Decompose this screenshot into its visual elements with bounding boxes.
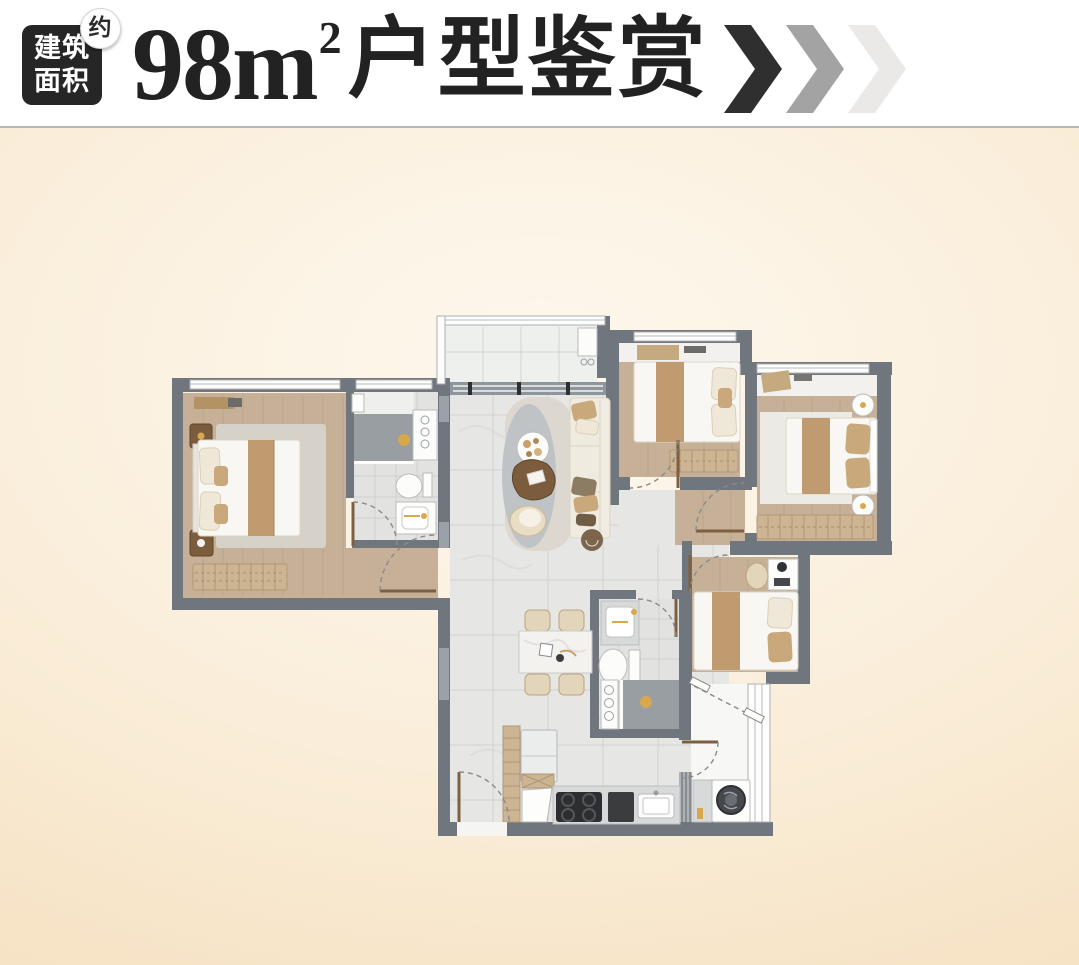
vanity-sink [396, 502, 436, 534]
cabinet-door [522, 788, 552, 822]
armchair [510, 506, 546, 536]
bedroom3-bench [757, 515, 873, 539]
bedroom2-window [634, 332, 736, 341]
page-title: 98 m 2 户型鉴赏 [132, 13, 708, 117]
bedroom4-bed [694, 592, 798, 670]
master-bed [193, 440, 300, 536]
shower [601, 680, 679, 729]
chevrons-icon [724, 25, 924, 115]
washing-machine [712, 780, 750, 822]
coffee-table [512, 460, 555, 500]
oven [608, 792, 634, 822]
page: 建筑 面积 约 98 m 2 户型鉴赏 [0, 0, 1079, 965]
shower-head [398, 434, 410, 446]
service-balcony-glass [748, 684, 770, 822]
title-text: 户型鉴赏 [348, 13, 708, 110]
dining-chair [559, 674, 584, 695]
pantry-cabinet [503, 726, 520, 822]
bedroom2-bench [670, 450, 738, 472]
dining-table [519, 631, 592, 673]
dining-chair [559, 610, 584, 631]
room-living [502, 397, 610, 551]
toilet [599, 649, 640, 683]
bedroom3-bed [786, 418, 877, 494]
approx-badge: 约 [80, 8, 121, 49]
master-bench [193, 564, 287, 590]
master-window [190, 380, 340, 389]
floor-plan [0, 0, 1079, 965]
shower [354, 410, 437, 464]
master-bath-window [356, 380, 432, 389]
vanity-sink [601, 601, 639, 645]
area-number: 98 [132, 13, 232, 117]
area-badge: 建筑 面积 约 [22, 25, 102, 105]
cooktop [556, 792, 602, 822]
area-superscript: 2 [319, 15, 342, 61]
desk [768, 559, 798, 590]
approx-label: 约 [89, 14, 113, 42]
bedroom3-window [757, 364, 869, 373]
toilet [396, 473, 432, 498]
area-unit: m [232, 13, 317, 117]
bay-mat [637, 345, 679, 360]
cabinet-hatch [522, 774, 554, 788]
header: 建筑 面积 约 98 m 2 户型鉴赏 [0, 0, 1079, 128]
desk-chair [746, 563, 768, 589]
kitchen-sink [638, 791, 674, 819]
sofa [570, 398, 610, 538]
hallway-floor [675, 490, 745, 545]
pipe-duct [679, 772, 692, 822]
dining-chair [525, 610, 550, 631]
pouf [581, 529, 603, 551]
water-heater [578, 328, 597, 356]
badge-line2: 面积 [34, 65, 90, 98]
living-sliding-door [450, 382, 606, 395]
dining-chair [525, 674, 550, 695]
bay-mat [761, 370, 791, 393]
bedroom2-bed [634, 362, 740, 442]
shower-head [640, 696, 652, 708]
room-service-balcony [693, 780, 750, 822]
